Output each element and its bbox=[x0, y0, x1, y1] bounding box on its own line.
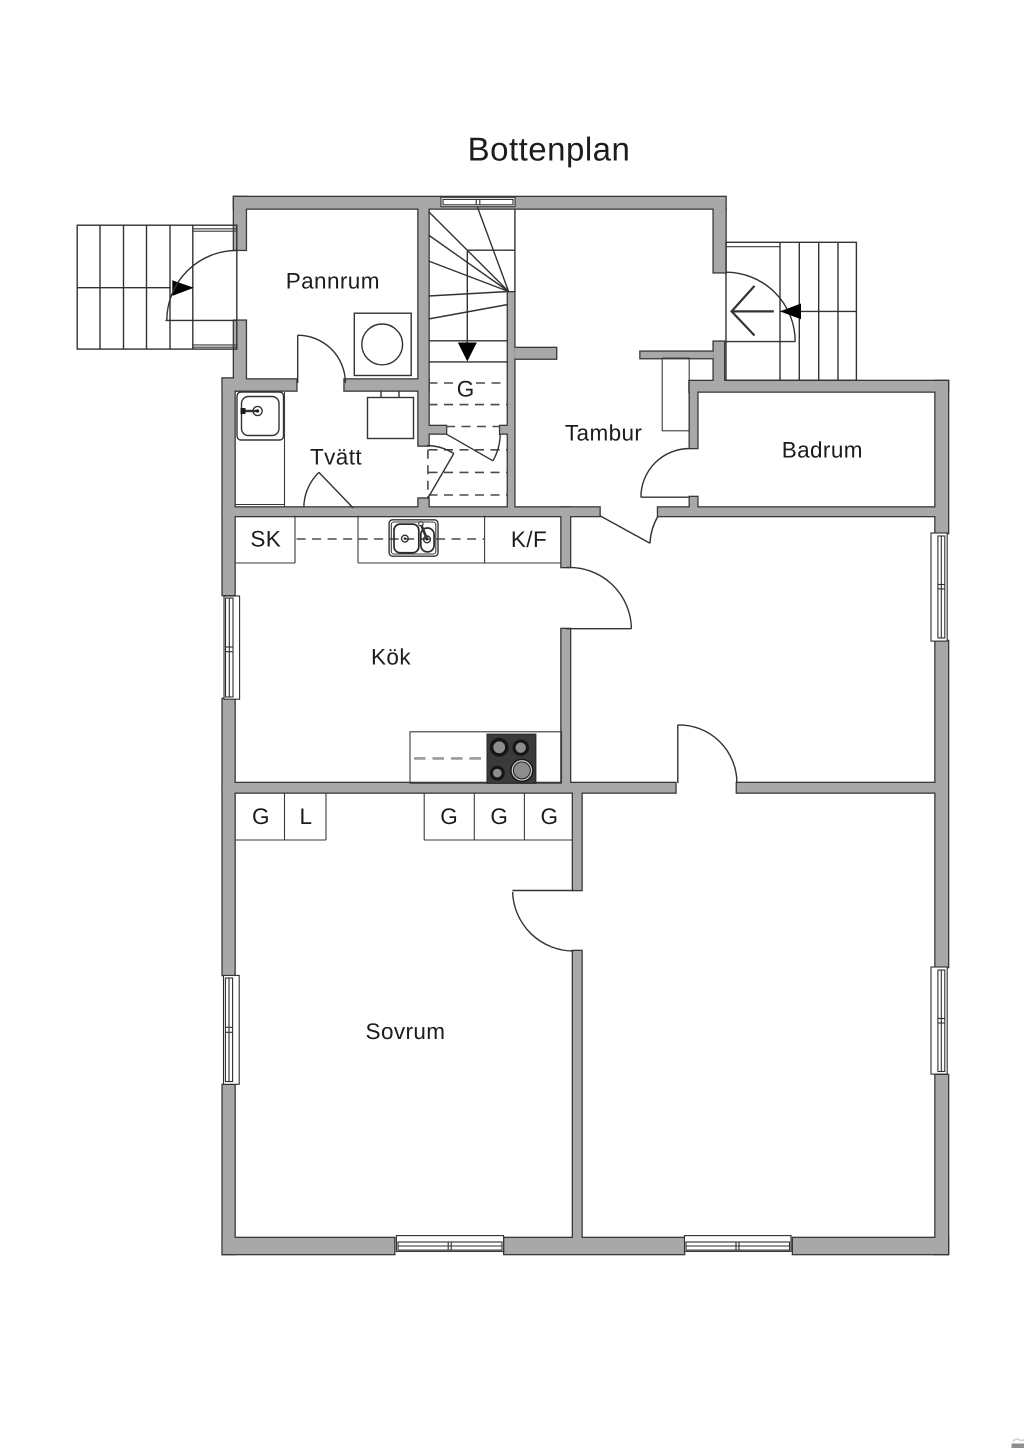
svg-text:Tambur: Tambur bbox=[565, 420, 643, 445]
svg-text:Sovrum: Sovrum bbox=[366, 1019, 446, 1044]
svg-text:Kök: Kök bbox=[371, 645, 411, 670]
svg-text:G: G bbox=[252, 804, 270, 829]
svg-text:G: G bbox=[490, 804, 508, 829]
svg-text:SK: SK bbox=[250, 527, 281, 552]
svg-text:G: G bbox=[540, 804, 558, 829]
svg-text:K/F: K/F bbox=[511, 527, 547, 552]
svg-text:G: G bbox=[457, 376, 475, 401]
svg-text:Pannrum: Pannrum bbox=[286, 269, 380, 294]
svg-text:G: G bbox=[440, 804, 458, 829]
svg-text:Badrum: Badrum bbox=[782, 438, 863, 463]
svg-text:Bottenplan: Bottenplan bbox=[468, 131, 631, 168]
svg-text:L: L bbox=[300, 804, 313, 829]
svg-text:Tvätt: Tvätt bbox=[310, 445, 362, 470]
